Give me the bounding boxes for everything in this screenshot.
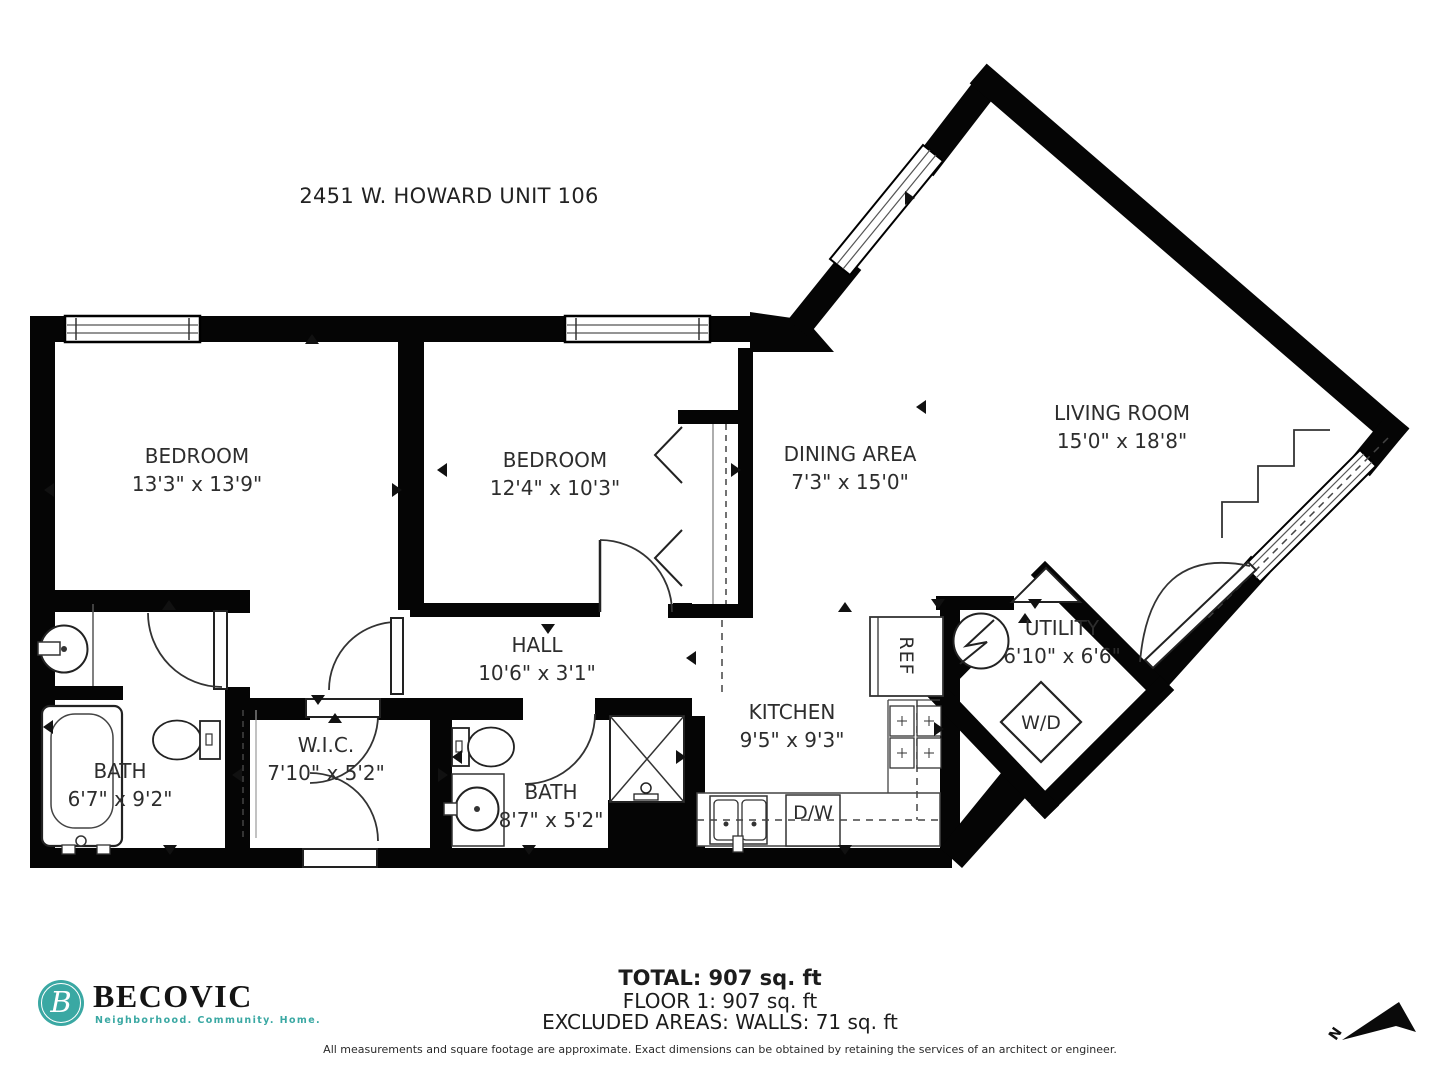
becovic-monogram-circle: B — [38, 980, 84, 1026]
room-name: BEDROOM — [490, 446, 620, 474]
refrigerator-label: REF — [895, 636, 917, 675]
north-arrow-icon — [1342, 1002, 1416, 1040]
room-label-living-room: LIVING ROOM 15'0" x 18'8" — [1054, 399, 1190, 455]
door-leaf-bath-1 — [214, 611, 227, 689]
room-dims: 9'5" x 9'3" — [740, 726, 845, 754]
room-name: DINING AREA — [784, 440, 917, 468]
room-name: BATH — [499, 778, 604, 806]
floor-plan-page: { "title": "2451 W. HOWARD UNIT 106", "r… — [0, 0, 1440, 1080]
room-label-bedroom-1: BEDROOM 13'3" x 13'9" — [132, 442, 262, 498]
door-arc-bedroom-1 — [329, 622, 397, 690]
room-label-kitchen: KITCHEN 9'5" x 9'3" — [740, 698, 845, 754]
excluded-area: EXCLUDED AREAS: WALLS: 71 sq. ft — [542, 1010, 898, 1034]
room-name: BATH — [68, 757, 173, 785]
room-dims: 10'6" x 3'1" — [478, 659, 596, 687]
water-heater — [954, 614, 1009, 669]
wall-arrow-icon — [686, 651, 696, 665]
room-label-bath-1: BATH 6'7" x 9'2" — [68, 757, 173, 813]
window-bedroom-1 — [65, 316, 200, 342]
room-dims: 15'0" x 18'8" — [1054, 427, 1190, 455]
room-dims: 8'7" x 5'2" — [499, 806, 604, 834]
room-name: BEDROOM — [132, 442, 262, 470]
shower — [610, 716, 684, 802]
brand-name: BECOVIC — [93, 980, 321, 1012]
becovic-logo: B BECOVIC Neighborhood. Community. Home. — [38, 980, 321, 1026]
plan-title: 2451 W. HOWARD UNIT 106 — [299, 184, 598, 208]
door-leaf-wic-lower — [303, 849, 377, 867]
wall-arrow-icon — [1028, 599, 1042, 609]
room-label-wic: W.I.C. 7'10" x 5'2" — [267, 731, 385, 787]
window-bedroom-2 — [565, 316, 710, 342]
toilet-bath-1 — [153, 721, 220, 760]
door-leaf-bedroom-1 — [391, 618, 403, 694]
diagonal-walls — [806, 82, 1391, 676]
window-living-upper — [830, 145, 943, 275]
room-name: KITCHEN — [740, 698, 845, 726]
wall-arrow-icon — [437, 463, 447, 477]
door-leaf-balcony — [1145, 562, 1256, 668]
total-area: TOTAL: 907 sq. ft — [618, 966, 821, 990]
room-label-bedroom-2: BEDROOM 12'4" x 10'3" — [490, 446, 620, 502]
vanity-sink-bath-2 — [444, 774, 504, 846]
room-label-utility: UTILITY 6'10" x 6'6" — [1003, 614, 1121, 670]
door-arc-bath-2 — [525, 714, 595, 784]
room-dims: 7'10" x 5'2" — [267, 759, 385, 787]
room-dims: 6'10" x 6'6" — [1003, 642, 1121, 670]
room-dims: 13'3" x 13'9" — [132, 470, 262, 498]
bedroom-2-closet — [655, 424, 726, 604]
room-dims: 7'3" x 15'0" — [784, 468, 917, 496]
disclaimer-text: All measurements and square footage are … — [323, 1043, 1117, 1056]
brand-tagline: Neighborhood. Community. Home. — [95, 1015, 321, 1026]
door-arc-bath-1 — [148, 613, 222, 687]
room-label-dining-area: DINING AREA 7'3" x 15'0" — [784, 440, 917, 496]
room-name: UTILITY — [1003, 614, 1121, 642]
room-name: W.I.C. — [267, 731, 385, 759]
dishwasher-label: D/W — [793, 802, 833, 824]
washer-dryer-label: W/D — [1021, 712, 1061, 734]
room-label-hall: HALL 10'6" x 3'1" — [478, 631, 596, 687]
wall-arrow-icon — [916, 400, 926, 414]
floor-plan-drawing — [0, 0, 1440, 1080]
stove — [890, 706, 941, 768]
monogram-ring — [41, 983, 81, 1023]
room-dims: 6'7" x 9'2" — [68, 785, 173, 813]
room-label-bath-2: BATH 8'7" x 5'2" — [499, 778, 604, 834]
room-name: LIVING ROOM — [1054, 399, 1190, 427]
utility-door-marker — [1012, 568, 1080, 602]
room-dims: 12'4" x 10'3" — [490, 474, 620, 502]
wall-arrow-icon — [838, 602, 852, 612]
room-name: HALL — [478, 631, 596, 659]
